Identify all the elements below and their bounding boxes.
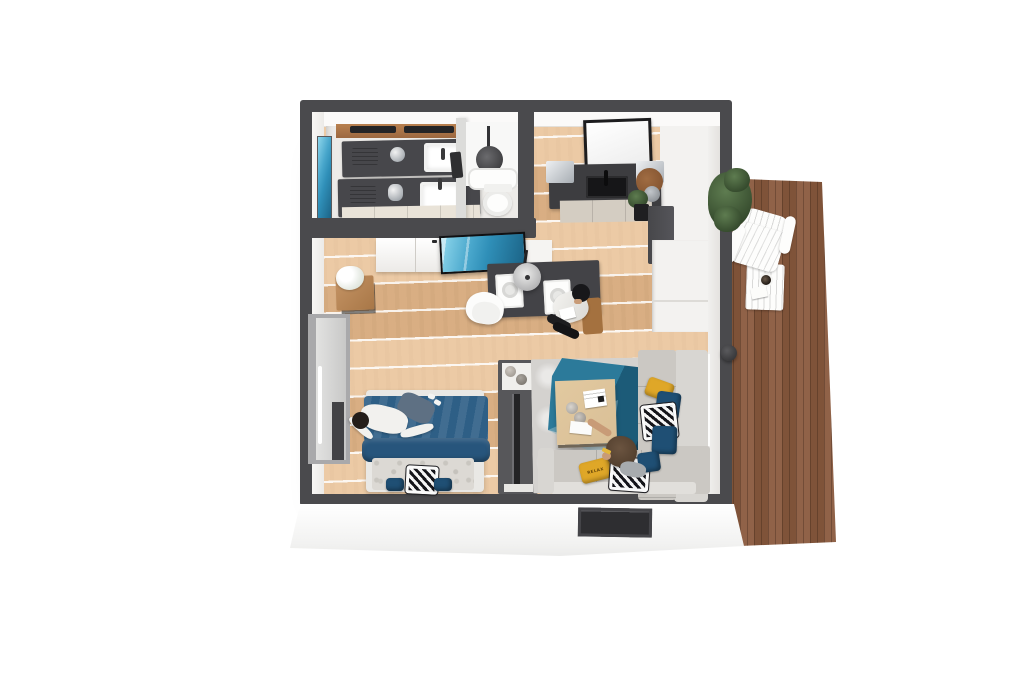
toilet-tank <box>484 184 512 192</box>
vanity-upper-appliance <box>352 148 378 165</box>
door-handle <box>432 240 437 243</box>
bathroom-wall-tray-1 <box>350 126 396 133</box>
pendant-lamp-center <box>525 275 530 280</box>
media-console-pot-1 <box>505 366 516 377</box>
vanity-lower-faucet <box>438 178 442 190</box>
coffee-cup <box>761 275 771 285</box>
kitchen-console-step <box>652 300 708 302</box>
vanity-lower-canister <box>388 184 403 201</box>
vanity-upper-faucet <box>441 148 445 160</box>
person-bed-head <box>352 412 369 429</box>
wardrobe-handle <box>318 366 322 444</box>
kitchen-worktop-left <box>546 161 574 183</box>
kitchen-faucet <box>604 170 608 186</box>
kitchen-console <box>652 240 708 332</box>
interior-wall-bathroom-east <box>518 100 534 238</box>
vanity-upper-canister <box>390 147 405 162</box>
coffee-table-magazine-qr <box>598 396 605 403</box>
bed-pillow-blue-left <box>386 478 404 491</box>
deck-door-handle <box>721 345 737 361</box>
floorplan-scene: RELAX <box>0 0 1024 682</box>
wardrobe-mirror <box>332 402 344 460</box>
media-console-tv-edge <box>512 394 520 484</box>
vanity-lower-appliance <box>350 186 376 203</box>
bathroom-wall-art <box>317 136 332 222</box>
bed-pillow-blue-right <box>434 478 452 491</box>
double-doors-seam <box>415 238 416 272</box>
exterior-wall-face-bottom <box>288 504 748 560</box>
toilet-bowl <box>483 190 512 216</box>
sofa-armrest-left <box>538 448 554 494</box>
media-console-bottom-shelf <box>504 484 533 492</box>
exterior-window <box>578 507 652 537</box>
bathroom-wall-tray-2 <box>404 126 454 133</box>
person-dining-face <box>574 299 582 304</box>
kitchen-plant-pot <box>634 204 649 221</box>
media-console-pot-2 <box>516 374 527 385</box>
